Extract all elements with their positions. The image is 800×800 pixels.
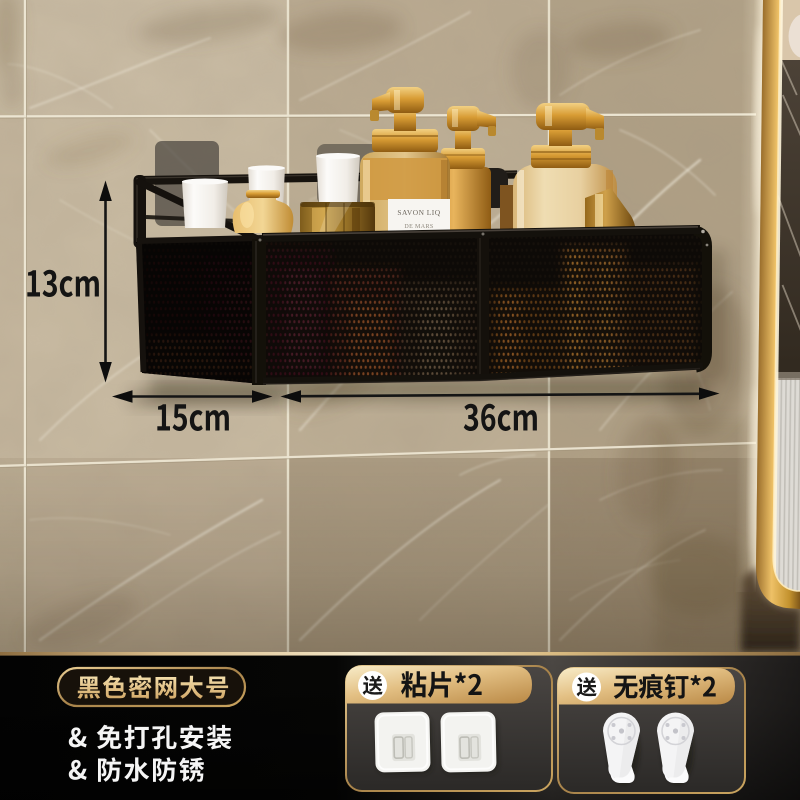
svg-text:DE MARS: DE MARS: [404, 224, 433, 230]
svg-text:SAVON LIQ: SAVON LIQ: [397, 208, 440, 217]
